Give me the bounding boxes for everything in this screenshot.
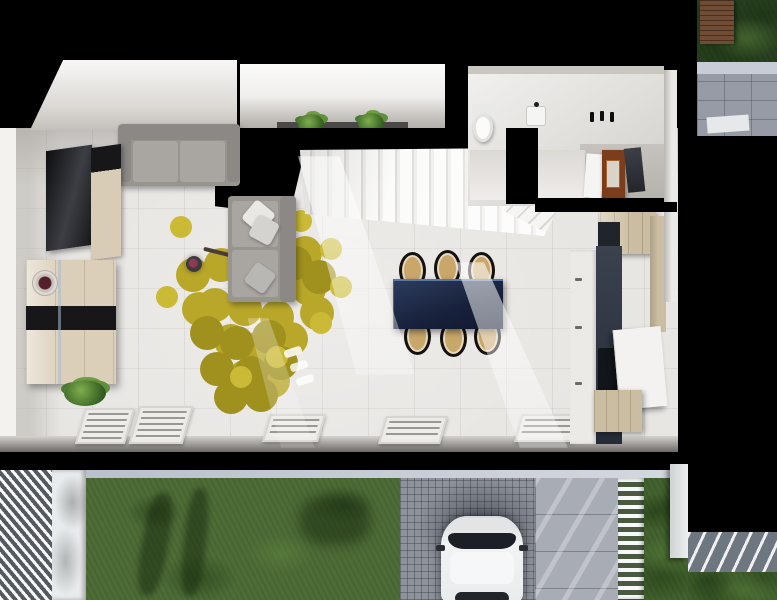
wc-entry-room: [468, 66, 664, 206]
chaise-sofa: [228, 196, 296, 302]
canopy-white-band: [52, 470, 86, 600]
sideboard-stripe: [26, 306, 116, 330]
sofa-seat: [133, 141, 178, 182]
sofa-armrest: [227, 136, 240, 182]
hand-basin: [526, 106, 546, 126]
arc-lamp-head: [186, 256, 202, 272]
kitchen-lower-wood-cabinet: [594, 390, 642, 432]
cutout-black: [688, 462, 777, 532]
car-windshield: [448, 533, 516, 549]
coat-hook: [600, 111, 604, 121]
toilet-tank: [472, 104, 494, 114]
car-mirror-right: [519, 545, 528, 551]
car-rear-glass: [455, 592, 509, 600]
decor-ring: [32, 270, 58, 296]
media-panel: [91, 144, 121, 260]
coat-hook: [590, 112, 594, 122]
lawn-bottom-right: [688, 572, 777, 600]
sofa-backrest: [118, 124, 240, 140]
tree-shadow: [300, 495, 370, 545]
tree-shadow: [178, 487, 211, 597]
lawn-left: [86, 478, 400, 600]
sofa-seat: [180, 141, 225, 182]
stone-slab: [706, 115, 749, 134]
brown-wardrobe: [602, 150, 625, 202]
basin-tap: [534, 102, 539, 107]
coat-hook: [610, 112, 614, 122]
wc-inner-wall: [506, 128, 538, 204]
radiator-grille: [129, 406, 194, 444]
car-mirror-left: [436, 545, 445, 551]
pergola-fragment: [688, 532, 777, 572]
top-wall-face: [30, 60, 237, 130]
rug-cluster-dark: [190, 316, 224, 350]
wood-deck: [700, 0, 734, 44]
louver-canopy: [0, 470, 52, 600]
car-hood: [451, 518, 513, 530]
side-wall: [670, 464, 688, 558]
right-wall-notch: [664, 202, 677, 212]
cabinet-handle: [575, 278, 582, 281]
floor-plant: [64, 380, 106, 406]
white-slat-fence: [618, 478, 644, 600]
wc-top-shade: [468, 66, 664, 74]
sideboard: [26, 260, 116, 384]
stone-wall-fragment: [697, 62, 777, 136]
tree-shadow: [133, 491, 177, 598]
entry-alcove: [240, 64, 445, 136]
rug-cluster-light: [170, 216, 192, 238]
cabinet-handle: [575, 326, 582, 329]
radiator-grille: [75, 408, 135, 444]
sofa-backrest: [280, 196, 296, 302]
right-wall-face: [664, 70, 677, 302]
cabinet-handle: [575, 382, 582, 385]
toilet-bowl: [473, 114, 493, 142]
kitchen-appliance-dark: [598, 222, 620, 248]
wardrobe-panel: [606, 160, 620, 188]
two-seat-sofa: [118, 124, 240, 186]
sideboard-accent-line: [58, 260, 61, 384]
kitchen-white-cabinets: [570, 250, 596, 444]
floorplan-render: [0, 0, 777, 600]
radiator-grille: [378, 416, 448, 444]
wall-tv: [46, 145, 92, 251]
white-car: [441, 516, 523, 600]
wc-bottom-wall: [535, 198, 668, 212]
paved-path: [535, 478, 618, 600]
car-roof: [450, 552, 514, 584]
